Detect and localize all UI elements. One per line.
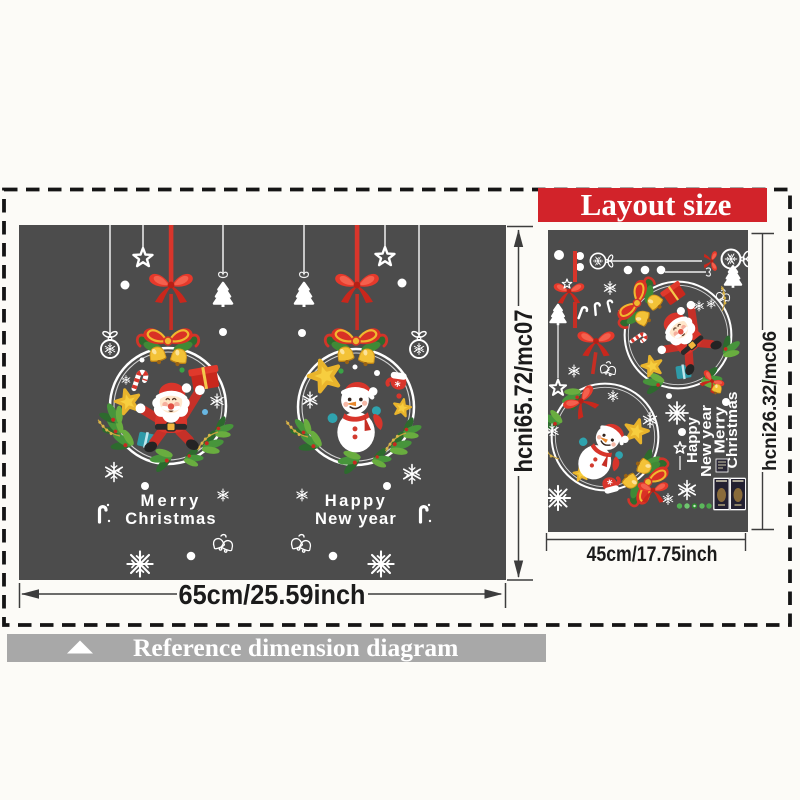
svg-text:hcni26.32/mc06: hcni26.32/mc06 — [760, 331, 781, 471]
svg-text:Merry: Merry — [141, 492, 202, 510]
svg-text:Reference dimension diagram: Reference dimension diagram — [133, 633, 458, 662]
svg-text:Happy: Happy — [325, 492, 387, 510]
svg-text:New year: New year — [315, 510, 397, 528]
svg-text:Layout size: Layout size — [581, 187, 732, 222]
svg-text:65cm/25.59inch: 65cm/25.59inch — [179, 579, 366, 610]
svg-text:Christmas: Christmas — [125, 510, 217, 528]
svg-text:hcni65.72/mc07: hcni65.72/mc07 — [510, 310, 538, 473]
svg-text:45cm/17.75inch: 45cm/17.75inch — [587, 542, 718, 566]
